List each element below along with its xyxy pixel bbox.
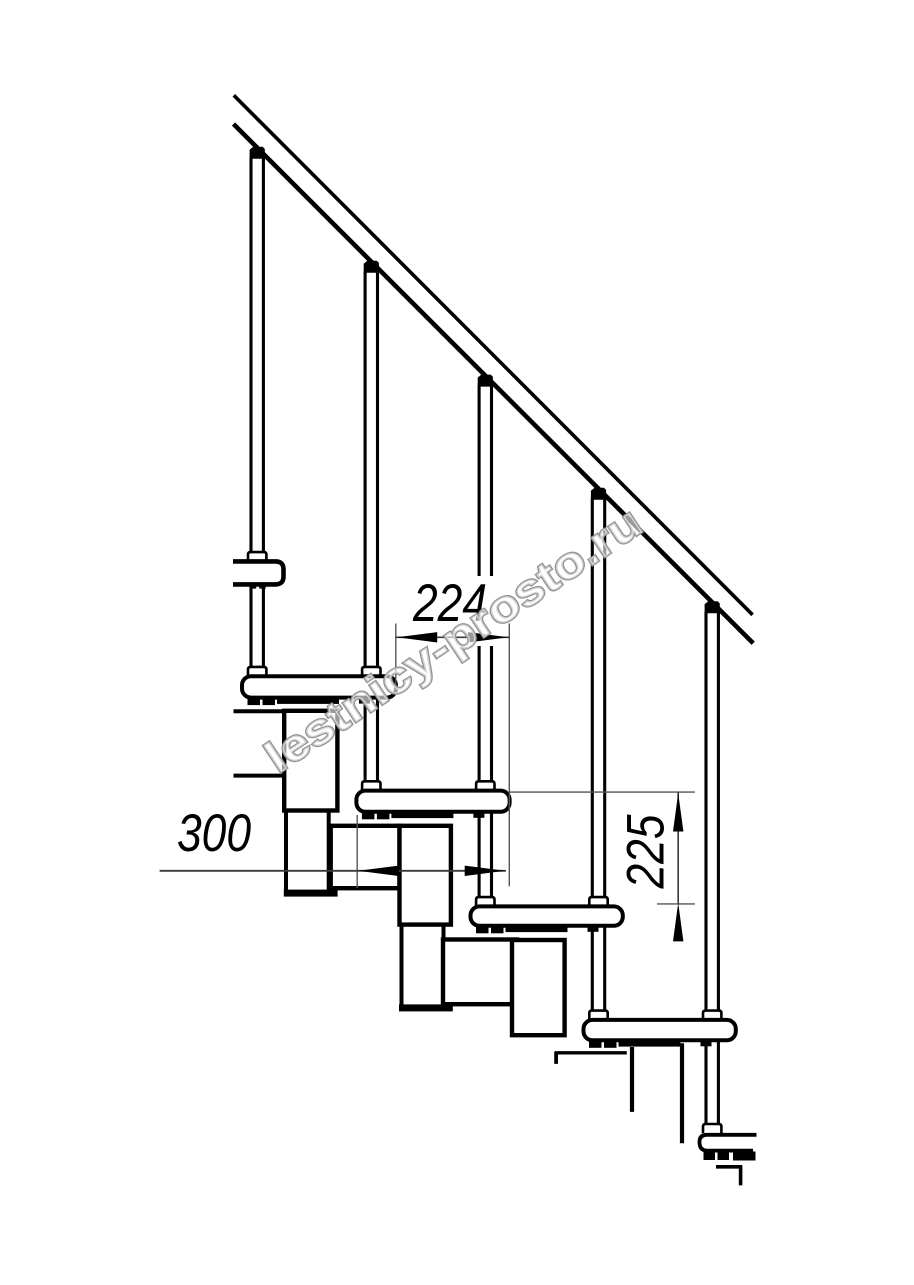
svg-text:225: 225 bbox=[617, 814, 676, 889]
svg-text:300: 300 bbox=[177, 804, 251, 863]
